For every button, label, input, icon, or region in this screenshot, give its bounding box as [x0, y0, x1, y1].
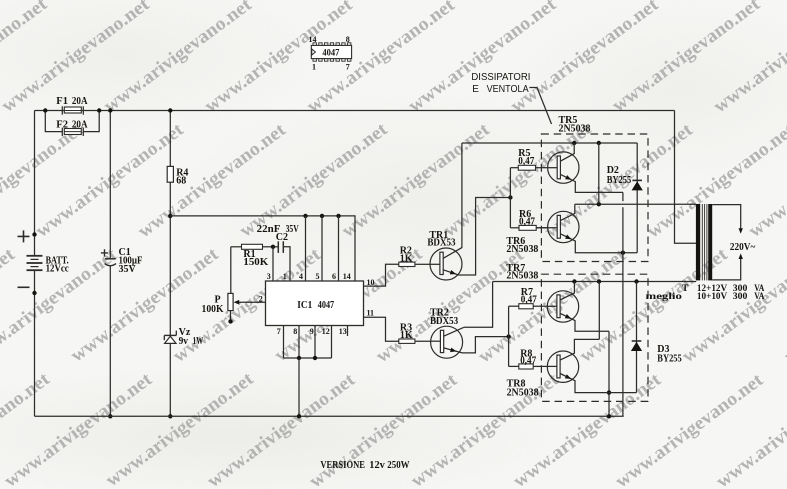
svg-text:35V: 35V [119, 264, 137, 275]
svg-text:F1: F1 [56, 96, 68, 107]
svg-text:20A: 20A [72, 120, 88, 131]
svg-text:0,47: 0,47 [520, 355, 536, 366]
svg-text:20A: 20A [72, 96, 88, 107]
svg-text:meglio: meglio [646, 292, 683, 302]
svg-text:9: 9 [310, 327, 314, 336]
svg-text:4047: 4047 [318, 299, 335, 311]
svg-text:0,47: 0,47 [521, 294, 537, 305]
svg-text:14: 14 [309, 35, 317, 44]
svg-text:12: 12 [322, 327, 330, 336]
svg-text:9v: 9v [179, 336, 188, 347]
svg-text:1: 1 [283, 272, 287, 281]
svg-text:F2: F2 [56, 120, 68, 131]
svg-text:7: 7 [346, 62, 350, 71]
svg-text:5: 5 [316, 272, 320, 281]
svg-text:VA: VA [754, 292, 764, 302]
svg-text:4: 4 [299, 272, 303, 281]
svg-text:7: 7 [277, 327, 281, 336]
svg-text:150K: 150K [243, 257, 268, 268]
svg-text:BDX53: BDX53 [430, 316, 458, 327]
svg-text:BY255: BY255 [657, 353, 682, 364]
svg-text:1: 1 [312, 62, 316, 71]
svg-text:300: 300 [733, 292, 748, 302]
svg-text:DISSIPATORI: DISSIPATORI [471, 72, 530, 83]
svg-text:C2: C2 [276, 232, 288, 243]
svg-text:BY255: BY255 [607, 175, 632, 186]
svg-text:0,47: 0,47 [518, 156, 534, 167]
svg-text:2N5038: 2N5038 [559, 124, 591, 135]
svg-text:68: 68 [176, 175, 186, 186]
svg-text:12v: 12v [369, 459, 385, 471]
svg-text:VENTOLA: VENTOLA [487, 84, 529, 95]
svg-text:0,47: 0,47 [519, 217, 535, 228]
svg-text:8: 8 [293, 327, 297, 336]
svg-text:2N5038: 2N5038 [507, 387, 539, 398]
svg-text:11: 11 [367, 308, 375, 317]
svg-text:1K: 1K [400, 253, 413, 264]
svg-text:14: 14 [343, 272, 351, 281]
svg-text:1K: 1K [400, 330, 413, 341]
svg-text:E: E [472, 84, 479, 95]
svg-text:IC1: IC1 [297, 299, 312, 311]
svg-text:BDX53: BDX53 [427, 238, 455, 249]
svg-text:4047: 4047 [322, 47, 339, 57]
svg-text:3: 3 [267, 272, 271, 281]
svg-text:2: 2 [259, 295, 263, 304]
svg-text:2N5038: 2N5038 [506, 270, 538, 281]
svg-text:10+10V: 10+10V [697, 292, 727, 302]
svg-text:220V~: 220V~ [730, 242, 756, 253]
svg-text:T: T [682, 284, 689, 294]
svg-text:12Vcc: 12Vcc [46, 264, 70, 275]
svg-text:100K: 100K [202, 304, 224, 315]
svg-text:2N5038: 2N5038 [506, 244, 538, 255]
svg-text:13: 13 [339, 327, 347, 336]
svg-text:250W: 250W [387, 459, 409, 471]
svg-text:VERSIONE: VERSIONE [320, 459, 365, 471]
svg-text:8: 8 [346, 35, 350, 44]
svg-text:6: 6 [332, 272, 336, 281]
svg-text:1W: 1W [193, 336, 204, 347]
